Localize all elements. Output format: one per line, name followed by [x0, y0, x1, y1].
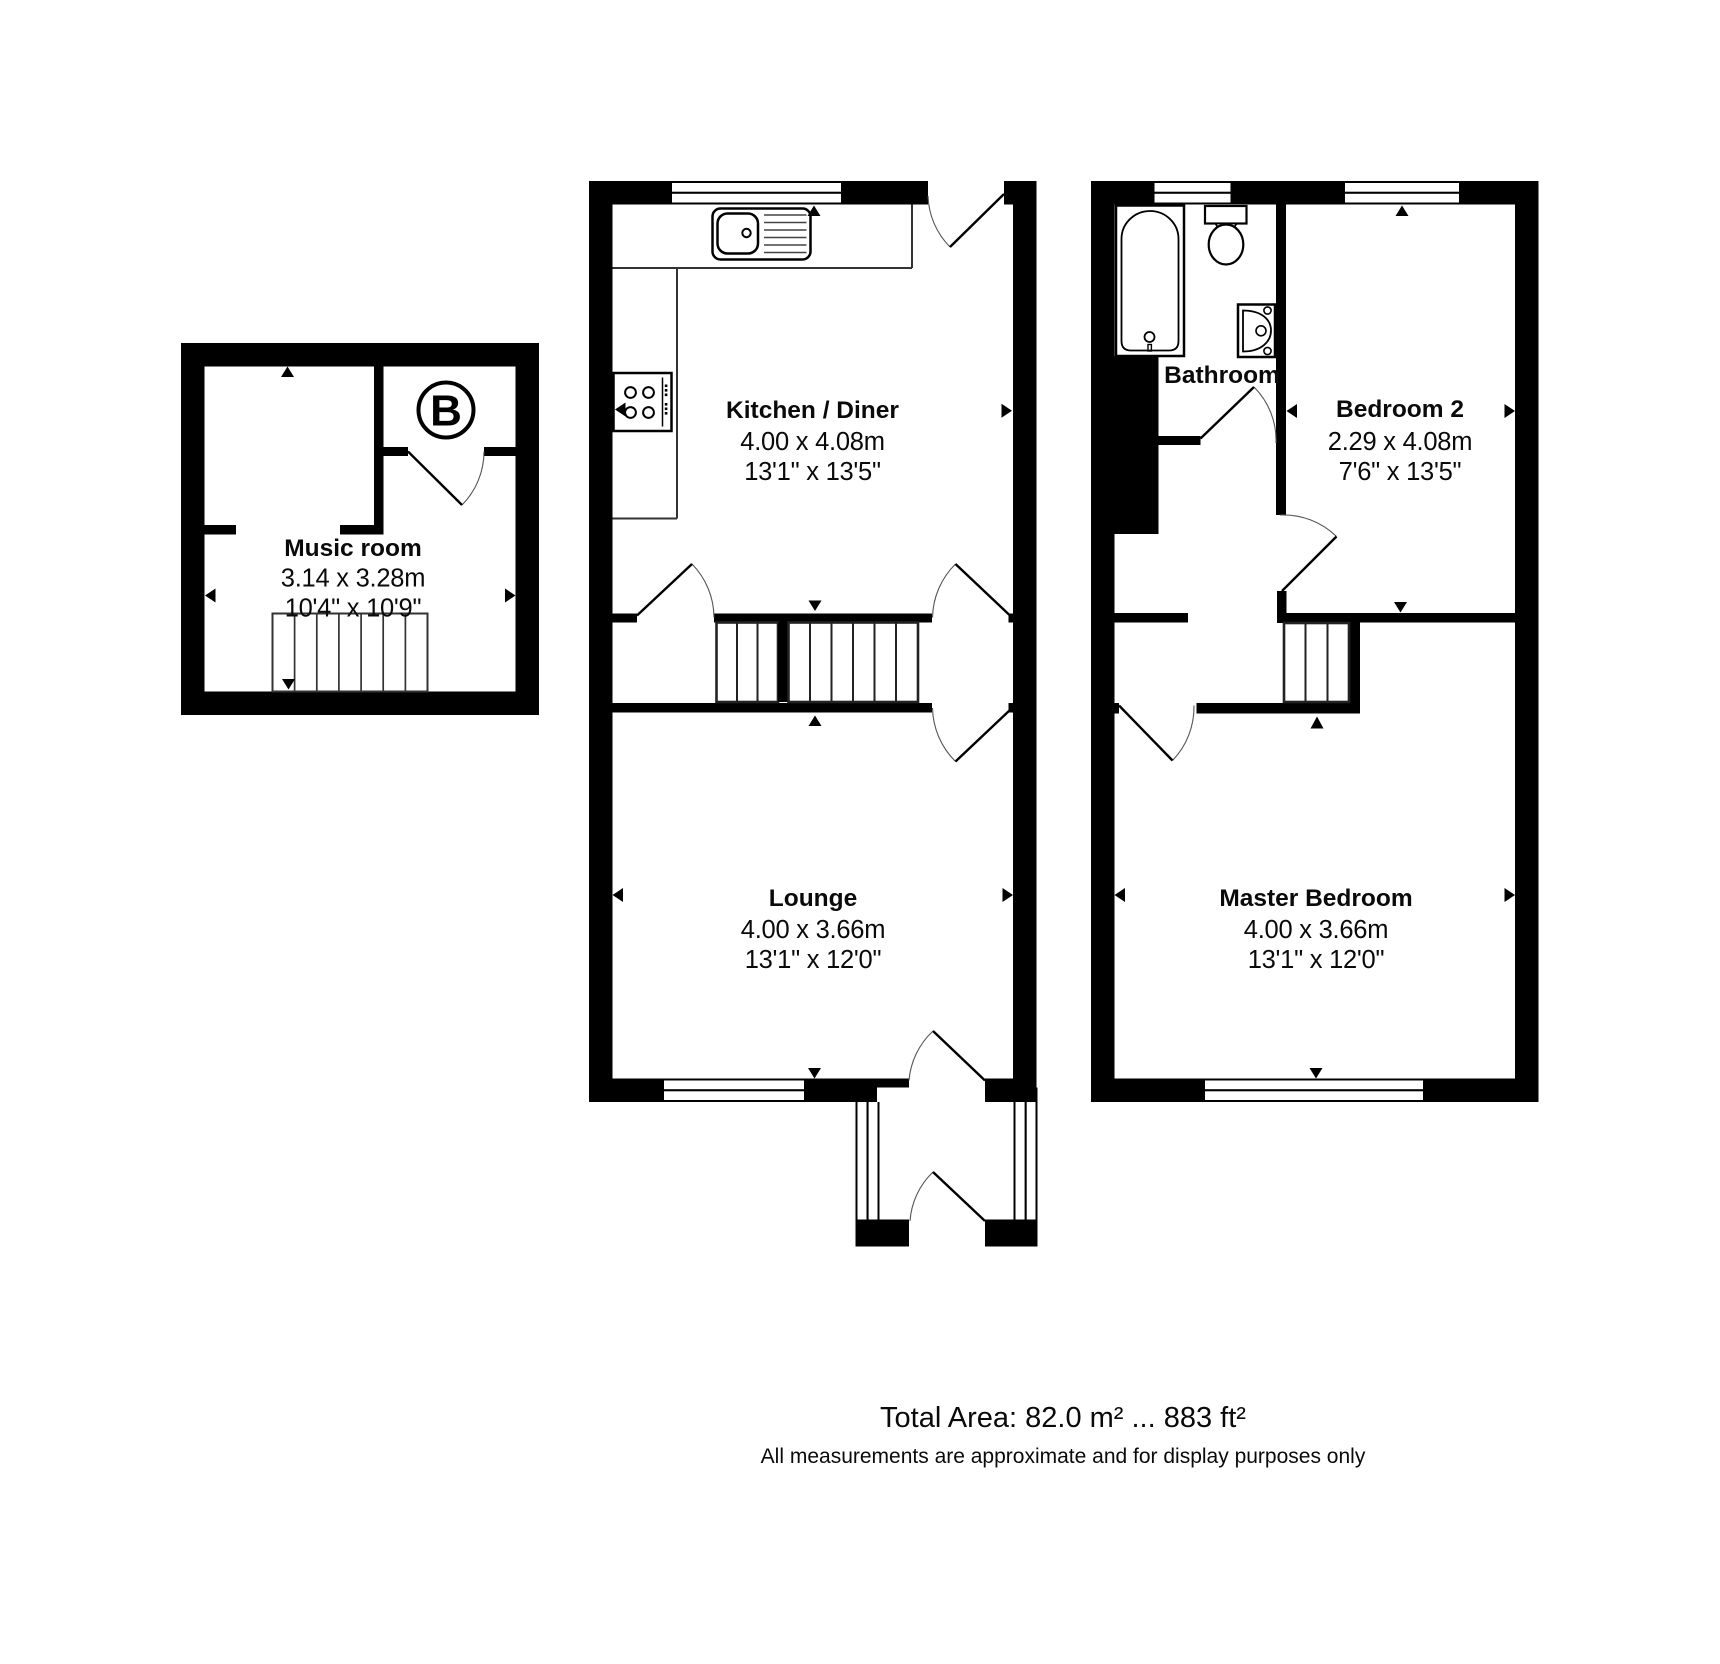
svg-text:4.00 x 3.66m: 4.00 x 3.66m [1244, 916, 1388, 944]
svg-text:4.00 x 4.08m: 4.00 x 4.08m [740, 428, 884, 456]
svg-text:Kitchen / Diner: Kitchen / Diner [726, 397, 899, 424]
svg-text:Lounge: Lounge [769, 885, 857, 912]
svg-text:13'1" x 12'0": 13'1" x 12'0" [1248, 946, 1385, 974]
svg-text:Total Area: 82.0 m² ... 883 ft: Total Area: 82.0 m² ... 883 ft² [880, 1402, 1246, 1434]
svg-text:7'6" x 13'5": 7'6" x 13'5" [1339, 458, 1462, 486]
svg-text:3.14 x 3.28m: 3.14 x 3.28m [281, 565, 425, 593]
svg-text:Master Bedroom: Master Bedroom [1219, 885, 1412, 912]
svg-text:Bathroom: Bathroom [1164, 362, 1280, 389]
svg-text:13'1" x 12'0": 13'1" x 12'0" [745, 946, 882, 974]
svg-text:2.29 x 4.08m: 2.29 x 4.08m [1328, 428, 1472, 456]
svg-text:Music room: Music room [284, 535, 422, 562]
svg-text:10'4" x 10'9": 10'4" x 10'9" [285, 595, 422, 623]
svg-text:4.00 x 3.66m: 4.00 x 3.66m [741, 916, 885, 944]
svg-text:All measurements are approxima: All measurements are approximate and for… [761, 1445, 1366, 1468]
svg-text:13'1" x 13'5": 13'1" x 13'5" [744, 458, 881, 486]
svg-text:B: B [430, 387, 462, 436]
svg-text:Bedroom 2: Bedroom 2 [1336, 396, 1464, 423]
